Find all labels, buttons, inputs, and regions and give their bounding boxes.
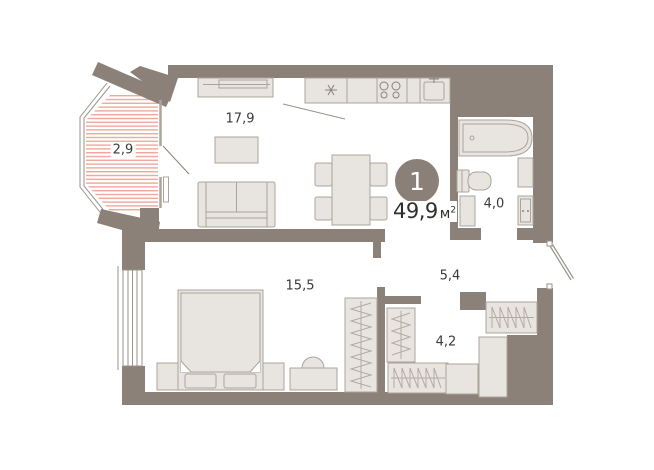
closet-wardrobe-left xyxy=(387,308,415,362)
dining-chair xyxy=(370,163,387,186)
bedroom-window xyxy=(118,266,142,370)
closet-wardrobe-top xyxy=(486,302,537,333)
dresser-with-stool xyxy=(290,357,337,390)
pillow xyxy=(185,374,216,388)
nightstand xyxy=(263,363,284,390)
floor-plan-drawing xyxy=(0,0,654,470)
wall-top-right-block xyxy=(452,65,553,117)
total-area-value: 49,9 xyxy=(393,201,438,222)
wall-top xyxy=(168,65,455,78)
dining-chair xyxy=(315,197,332,220)
closet-cabinet xyxy=(446,364,478,394)
bath-sink xyxy=(518,196,533,225)
nightstand xyxy=(157,363,178,390)
coffee-table xyxy=(215,137,258,163)
sofa xyxy=(198,182,275,227)
dining-table-set xyxy=(315,155,387,225)
wall-right-stub xyxy=(537,288,553,335)
room-area-label-hallway: 5,4 xyxy=(438,269,463,284)
closet-wardrobe-bottom xyxy=(388,363,448,393)
dining-chair xyxy=(315,163,332,186)
bed xyxy=(178,290,263,390)
dining-table xyxy=(332,155,370,225)
wall-right-upper xyxy=(533,117,553,243)
wall-bathroom-bottom-left xyxy=(450,228,481,240)
tv-stand xyxy=(198,78,273,97)
closet-column-cabinet xyxy=(479,337,507,397)
wall-bathroom-bottom-right xyxy=(517,228,553,240)
wall-bedroom-door-stub xyxy=(373,242,381,258)
room-area-label-wardrobe: 4,2 xyxy=(434,335,459,350)
rooms-count: 1 xyxy=(409,169,425,194)
pillow xyxy=(224,374,256,388)
toilet xyxy=(457,170,491,192)
wall-left-lower xyxy=(122,366,145,396)
floor-plan: 2,9 17,9 4,0 5,4 4,2 15,5 1 49,9 м2 xyxy=(0,0,654,470)
wall-closet-top-stub xyxy=(385,296,421,304)
rooms-count-badge: 1 xyxy=(395,159,439,203)
wall-closet-top-right xyxy=(460,292,486,310)
bathtub xyxy=(459,120,532,156)
entry-door xyxy=(547,241,574,289)
room-area-label-bedroom: 15,5 xyxy=(284,279,317,294)
bedroom-wardrobe xyxy=(345,298,377,392)
balcony-door xyxy=(161,100,190,208)
room-area-label-living-kitchen: 17,9 xyxy=(224,112,257,127)
total-area-label: 49,9 м2 xyxy=(392,201,457,222)
total-area-unit: м2 xyxy=(440,207,456,221)
wall-living-bedroom xyxy=(143,229,385,242)
room-area-label-balcony: 2,9 xyxy=(111,143,136,158)
bath-cabinet xyxy=(460,196,475,226)
room-area-label-bathroom: 4,0 xyxy=(482,197,507,212)
wall-bedroom-closet xyxy=(377,287,385,397)
dining-chair xyxy=(370,197,387,220)
washer-cabinet xyxy=(518,158,533,187)
